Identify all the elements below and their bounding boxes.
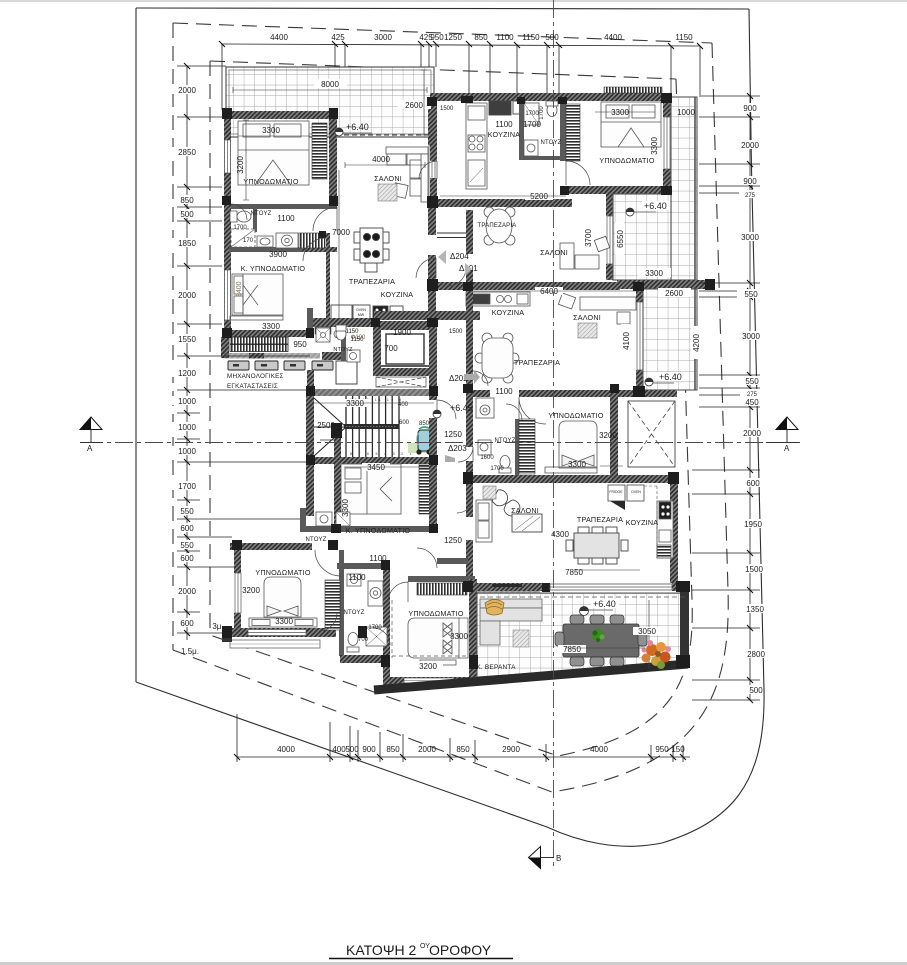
svg-text:900: 900 <box>743 104 757 113</box>
svg-text:3300: 3300 <box>346 399 364 408</box>
svg-text:2000: 2000 <box>741 141 759 150</box>
svg-text:3700: 3700 <box>584 229 593 247</box>
svg-text:950: 950 <box>293 340 307 349</box>
svg-text:1700: 1700 <box>525 111 539 117</box>
svg-text:MW: MW <box>358 313 365 317</box>
svg-text:500: 500 <box>345 745 359 754</box>
svg-text:ΝΤΟΥΖ: ΝΤΟΥΖ <box>540 140 561 146</box>
svg-text:600: 600 <box>180 524 194 533</box>
svg-text:1900: 1900 <box>393 328 411 337</box>
svg-text:7850: 7850 <box>565 568 583 577</box>
svg-text:3300: 3300 <box>568 460 586 469</box>
svg-text:3400: 3400 <box>236 281 243 297</box>
svg-text:3300: 3300 <box>645 269 663 278</box>
svg-text:2600: 2600 <box>665 289 683 298</box>
svg-text:400: 400 <box>332 745 346 754</box>
svg-text:1150: 1150 <box>675 33 693 42</box>
svg-text:8000: 8000 <box>321 80 339 89</box>
svg-text:Κ. ΥΠΝΟΔΩΜΑΤΙΟ: Κ. ΥΠΝΟΔΩΜΑΤΙΟ <box>346 526 411 535</box>
svg-text:550: 550 <box>180 507 194 516</box>
svg-text:1500: 1500 <box>440 106 454 112</box>
svg-text:+6.40: +6.40 <box>346 122 369 132</box>
svg-text:1250: 1250 <box>444 536 462 545</box>
svg-text:1500: 1500 <box>449 329 463 335</box>
svg-text:6550: 6550 <box>616 230 625 248</box>
svg-text:ΝΤΟΥΖ: ΝΤΟΥΖ <box>333 347 353 353</box>
svg-text:OVEN: OVEN <box>356 308 366 312</box>
svg-text:4400: 4400 <box>604 33 622 42</box>
svg-text:1550: 1550 <box>178 335 196 344</box>
svg-text:5200: 5200 <box>530 192 548 201</box>
svg-text:ΝΤΟΥΖ: ΝΤΟΥΖ <box>305 537 326 543</box>
svg-text:850: 850 <box>386 745 400 754</box>
svg-text:2850: 2850 <box>178 148 196 157</box>
svg-text:500: 500 <box>180 210 194 219</box>
svg-text:1600: 1600 <box>480 455 494 461</box>
svg-text:ΣΑΛΟΝΙ: ΣΑΛΟΝΙ <box>540 248 568 257</box>
svg-text:B: B <box>556 854 561 863</box>
svg-text:2000: 2000 <box>178 291 196 300</box>
svg-text:3200: 3200 <box>236 156 245 174</box>
svg-text:Δ203: Δ203 <box>448 444 467 453</box>
svg-text:500: 500 <box>749 686 763 695</box>
svg-text:3300: 3300 <box>650 137 659 155</box>
svg-text:ΤΡΑΠΕΖΑΡΙΑ: ΤΡΑΠΕΖΑΡΙΑ <box>478 223 517 229</box>
svg-text:ΣΑΛΟΝΙ: ΣΑΛΟΝΙ <box>374 174 402 183</box>
svg-text:ΥΠΝΟΔΩΜΑΤΙΟ: ΥΠΝΟΔΩΜΑΤΙΟ <box>243 177 298 186</box>
svg-text:3000: 3000 <box>374 33 392 42</box>
svg-text:Δ204: Δ204 <box>450 252 469 261</box>
svg-text:1150: 1150 <box>351 337 365 343</box>
svg-text:275: 275 <box>745 193 756 199</box>
svg-text:4200: 4200 <box>692 334 701 352</box>
svg-text:1100: 1100 <box>495 387 513 396</box>
svg-text:+6.40: +6.40 <box>644 201 667 211</box>
svg-text:+6.45: +6.45 <box>450 403 473 413</box>
svg-text:2000: 2000 <box>178 587 196 596</box>
svg-text:3300: 3300 <box>262 322 280 331</box>
svg-text:3450: 3450 <box>367 463 385 472</box>
svg-text:1.5μ.: 1.5μ. <box>181 647 199 656</box>
svg-text:3050: 3050 <box>638 627 656 636</box>
svg-text:ΥΠΝΟΔΩΜΑΤΙΟ: ΥΠΝΟΔΩΜΑΤΙΟ <box>599 156 654 165</box>
svg-text:600: 600 <box>746 479 760 488</box>
svg-text:ΝΤΟΥΖ: ΝΤΟΥΖ <box>494 438 515 444</box>
svg-text:900: 900 <box>362 745 376 754</box>
svg-text:ΝΤΟΥΖ: ΝΤΟΥΖ <box>250 211 271 217</box>
svg-text:4000: 4000 <box>590 745 608 754</box>
svg-text:ΚΟΥΖΙΝΑ: ΚΟΥΖΙΝΑ <box>492 308 525 317</box>
svg-text:4400: 4400 <box>270 33 288 42</box>
svg-text:1100: 1100 <box>348 573 366 582</box>
svg-text:ΝΤΟΥΖ: ΝΤΟΥΖ <box>343 610 364 616</box>
svg-text:150: 150 <box>671 745 685 754</box>
svg-text:950: 950 <box>655 745 669 754</box>
svg-text:600: 600 <box>180 554 194 563</box>
svg-text:ΚΑΤΟΨΗ 2: ΚΑΤΟΨΗ 2 <box>346 942 417 958</box>
svg-text:ΥΠΝΟΔΩΜΑΤΙΟ: ΥΠΝΟΔΩΜΑΤΙΟ <box>255 568 310 577</box>
svg-text:1150: 1150 <box>522 33 540 42</box>
svg-text:A: A <box>87 444 93 453</box>
svg-text:950: 950 <box>430 33 444 42</box>
svg-text:7850: 7850 <box>563 645 581 654</box>
svg-text:ΥΠΝΟΔΩΜΑΤΙΟ: ΥΠΝΟΔΩΜΑΤΙΟ <box>548 411 603 420</box>
svg-text:3300: 3300 <box>262 126 280 135</box>
svg-text:OVEN: OVEN <box>631 490 641 494</box>
svg-text:170: 170 <box>243 238 254 244</box>
svg-text:A: A <box>784 444 790 453</box>
svg-text:600: 600 <box>399 420 410 426</box>
svg-text:1250: 1250 <box>444 430 462 439</box>
svg-text:ΤΡΑΠΕΖΑΡΙΑ: ΤΡΑΠΕΖΑΡΙΑ <box>577 515 623 524</box>
svg-text:550: 550 <box>744 290 758 299</box>
svg-text:550: 550 <box>745 377 759 386</box>
svg-text:ΟΡΟΦΟΥ: ΟΡΟΦΟΥ <box>429 942 492 958</box>
svg-text:2000: 2000 <box>743 429 761 438</box>
svg-text:+6.40: +6.40 <box>593 599 616 609</box>
svg-text:Κ. ΥΠΝΟΔΩΜΑΤΙΟ: Κ. ΥΠΝΟΔΩΜΑΤΙΟ <box>241 264 306 273</box>
svg-text:ΣΑΛΟΝΙ: ΣΑΛΟΝΙ <box>511 506 539 515</box>
svg-text:3300: 3300 <box>450 632 468 641</box>
svg-text:450: 450 <box>745 398 759 407</box>
svg-text:4000: 4000 <box>277 745 295 754</box>
svg-text:3900: 3900 <box>269 250 287 259</box>
svg-text:2800: 2800 <box>747 650 765 659</box>
svg-text:3300: 3300 <box>341 499 350 517</box>
svg-text:Κ. ΒΕΡΑΝΤΑ: Κ. ΒΕΡΑΝΤΑ <box>476 664 516 671</box>
svg-text:ΚΟΥΖΙΝΑ: ΚΟΥΖΙΝΑ <box>381 290 414 299</box>
svg-text:3300: 3300 <box>275 617 293 626</box>
svg-text:4100: 4100 <box>622 332 631 350</box>
svg-text:1850: 1850 <box>178 239 196 248</box>
svg-text:ΤΡΑΠΕΖΑΡΙΑ: ΤΡΑΠΕΖΑΡΙΑ <box>349 277 395 286</box>
svg-text:1500: 1500 <box>745 565 763 574</box>
svg-text:1700: 1700 <box>233 225 247 231</box>
svg-text:1000: 1000 <box>178 447 196 456</box>
svg-text:3000: 3000 <box>741 233 759 242</box>
svg-text:600: 600 <box>180 619 194 628</box>
svg-text:850: 850 <box>180 196 194 205</box>
svg-text:3200: 3200 <box>419 662 437 671</box>
svg-text:425: 425 <box>331 33 345 42</box>
svg-text:550: 550 <box>180 541 194 550</box>
svg-text:900: 900 <box>743 177 757 186</box>
svg-text:4000: 4000 <box>372 155 390 164</box>
svg-text:1250: 1250 <box>444 33 462 42</box>
svg-text:ΣΑΛΟΝΙ: ΣΑΛΟΝΙ <box>573 313 601 322</box>
svg-text:1700: 1700 <box>368 625 382 631</box>
svg-text:850: 850 <box>419 421 430 427</box>
svg-text:FRIDGE: FRIDGE <box>609 490 623 494</box>
svg-text:3200: 3200 <box>242 586 260 595</box>
svg-text:1700: 1700 <box>178 482 196 491</box>
svg-text:3200: 3200 <box>599 431 617 440</box>
svg-text:700: 700 <box>384 344 398 353</box>
svg-text:1200: 1200 <box>178 369 196 378</box>
svg-text:ΚΟΥΖΙΝΑ: ΚΟΥΖΙΝΑ <box>626 518 659 527</box>
svg-text:ΕΓΚΑΤΑΣΤΑΣΕΙΣ: ΕΓΚΑΤΑΣΤΑΣΕΙΣ <box>227 383 278 390</box>
svg-text:1350: 1350 <box>746 605 764 614</box>
svg-text:850: 850 <box>474 33 488 42</box>
svg-text:1100: 1100 <box>495 120 513 129</box>
svg-text:1700: 1700 <box>523 120 541 129</box>
svg-text:ΚΟΥΖΙΝΑ: ΚΟΥΖΙΝΑ <box>488 130 521 139</box>
svg-text:2000: 2000 <box>418 745 436 754</box>
svg-text:1000: 1000 <box>677 108 695 117</box>
svg-text:1000: 1000 <box>178 423 196 432</box>
svg-text:1100: 1100 <box>277 214 295 223</box>
svg-text:2000: 2000 <box>178 86 196 95</box>
svg-text:3000: 3000 <box>742 332 760 341</box>
svg-text:6400: 6400 <box>540 287 558 296</box>
svg-text:850: 850 <box>456 745 470 754</box>
svg-text:1000: 1000 <box>178 397 196 406</box>
svg-text:3μ.: 3μ. <box>212 622 223 631</box>
svg-text:1700: 1700 <box>490 466 504 472</box>
svg-text:8 7 6 5 4 3 2 1: 8 7 6 5 4 3 2 1 <box>350 452 414 456</box>
svg-text:+6.40: +6.40 <box>659 372 682 382</box>
svg-text:7000: 7000 <box>332 228 350 237</box>
svg-text:ΜΗΧΑΝΟΛΟΓΙΚΕΣ: ΜΗΧΑΝΟΛΟΓΙΚΕΣ <box>227 373 284 380</box>
svg-text:1100: 1100 <box>496 33 514 42</box>
svg-text:500: 500 <box>545 33 559 42</box>
svg-text:2600: 2600 <box>405 101 423 110</box>
svg-text:2900: 2900 <box>502 745 520 754</box>
svg-text:ΥΠΝΟΔΩΜΑΤΙΟ: ΥΠΝΟΔΩΜΑΤΙΟ <box>408 609 463 618</box>
svg-text:1700: 1700 <box>539 106 545 120</box>
svg-text:1950: 1950 <box>744 520 762 529</box>
svg-text:3300: 3300 <box>611 108 629 117</box>
